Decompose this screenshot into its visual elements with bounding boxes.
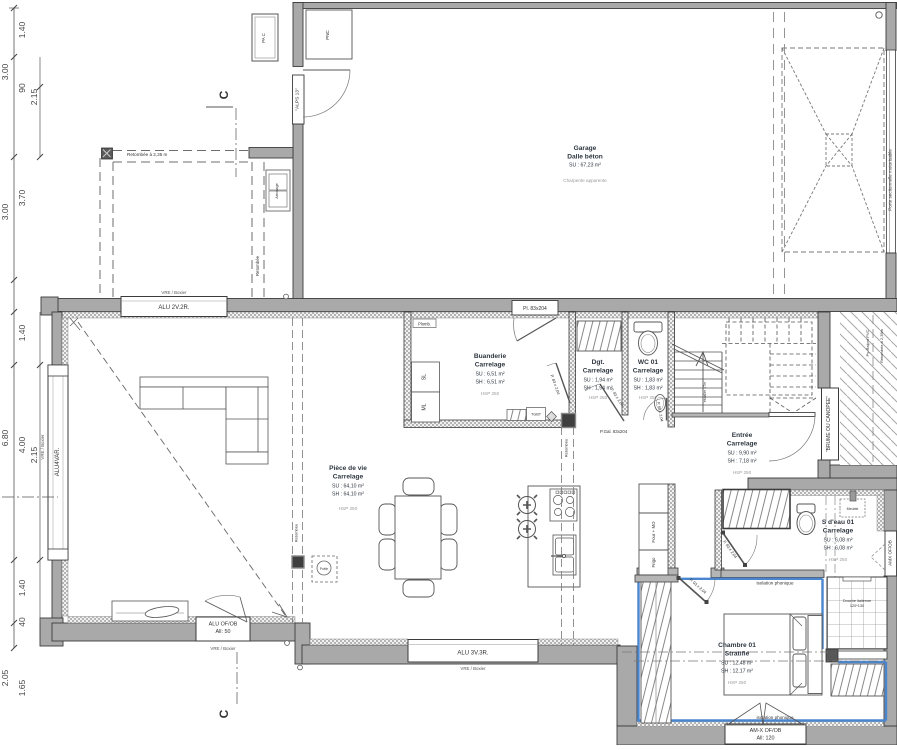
svg-text:escalier 17m: escalier 17m — [703, 382, 707, 402]
svg-text:3.00: 3.00 — [0, 63, 10, 80]
svg-text:Dgt.: Dgt. — [592, 359, 605, 366]
svg-text:Retombée à 2,35 m: Retombée à 2,35 m — [127, 152, 168, 157]
svg-text:SU : 67,23 m²: SU : 67,23 m² — [569, 163, 601, 169]
svg-text:Py-Ralpof PVC: Py-Ralpof PVC — [865, 329, 870, 356]
svg-text:ALU 3V.3R.: ALU 3V.3R. — [457, 651, 488, 657]
svg-text:PA C: PA C — [261, 33, 266, 43]
svg-text:Retombée à 2,35m: Retombée à 2,35m — [879, 328, 884, 363]
svg-text:VRE / Boxier: VRE / Boxier — [161, 290, 187, 295]
svg-text:HSP 250: HSP 250 — [728, 680, 747, 685]
svg-text:Carrelage: Carrelage — [333, 474, 364, 481]
svg-text:ML: ML — [422, 403, 428, 410]
svg-text:WC 01: WC 01 — [638, 359, 658, 366]
svg-text:Poêle: Poêle — [320, 567, 328, 571]
svg-text:SH : 7,18 m²: SH : 7,18 m² — [727, 459, 756, 465]
svg-text:Meuble: Meuble — [847, 507, 859, 511]
svg-text:Frigo: Frigo — [651, 557, 656, 568]
svg-text:90: 90 — [17, 83, 27, 93]
svg-text:Arrosage: Arrosage — [275, 183, 279, 198]
svg-text:isolation phonique: isolation phonique — [756, 581, 793, 586]
svg-text:C: C — [217, 709, 231, 718]
svg-text:VRE / Boxier: VRE / Boxier — [460, 666, 486, 671]
svg-text:SU : 1,94 m²: SU : 1,94 m² — [583, 378, 612, 384]
svg-text:SH : 6,51 m²: SH : 6,51 m² — [475, 380, 504, 386]
svg-text:Retombée: Retombée — [564, 438, 569, 457]
svg-text:HSP 250: HSP 250 — [589, 395, 608, 400]
svg-text:HSP 250: HSP 250 — [339, 506, 358, 511]
svg-text:ALU 2V.2R.: ALU 2V.2R. — [158, 305, 189, 311]
svg-text:ALU OF/OB: ALU OF/OB — [209, 622, 238, 628]
svg-text:Retombée: Retombée — [294, 523, 299, 542]
svg-text:HSP 250: HSP 250 — [481, 391, 500, 396]
svg-text:Carrelage: Carrelage — [633, 368, 664, 375]
svg-text:AMX OF/OB: AMX OF/OB — [888, 540, 893, 566]
svg-text:Garage: Garage — [574, 145, 597, 152]
svg-text:SH : 6,08 m²: SH : 6,08 m² — [823, 546, 852, 552]
svg-text:VRE / Boxier: VRE / Boxier — [210, 646, 236, 651]
svg-text:VRE / Boxier: VRE / Boxier — [40, 434, 45, 460]
svg-text:Carrelage: Carrelage — [475, 362, 506, 369]
svg-text:2.15: 2.15 — [29, 88, 39, 105]
svg-text:All: 120: All: 120 — [757, 736, 775, 742]
svg-text:Chambre 01: Chambre 01 — [718, 642, 756, 649]
svg-text:SL: SL — [422, 374, 428, 380]
svg-text:SH : 12,17 m²: SH : 12,17 m² — [721, 669, 753, 675]
svg-text:Pl. 83x204: Pl. 83x204 — [523, 306, 547, 312]
svg-text:Retombée: Retombée — [255, 255, 260, 276]
svg-text:"ALPS 13": "ALPS 13" — [295, 88, 301, 111]
svg-text:1.40: 1.40 — [17, 324, 27, 341]
svg-text:Porte sectionnelle motorisable: Porte sectionnelle motorisable — [888, 149, 893, 211]
svg-text:SH : 1,94 m²: SH : 1,94 m² — [583, 386, 612, 392]
svg-text:1.65: 1.65 — [17, 679, 27, 696]
svg-text:SH : 1,83 m²: SH : 1,83 m² — [633, 386, 662, 392]
svg-text:HSP 250: HSP 250 — [829, 557, 848, 562]
svg-text:TGBT: TGBT — [531, 413, 542, 417]
svg-text:SU : 12,48 m²: SU : 12,48 m² — [721, 661, 753, 667]
svg-text:SU : 64,10 m²: SU : 64,10 m² — [332, 484, 364, 490]
svg-text:Buanderie: Buanderie — [474, 353, 507, 360]
svg-text:Plomb.: Plomb. — [418, 322, 431, 327]
svg-text:Carrelage: Carrelage — [823, 528, 854, 535]
svg-text:SU : 1,83 m²: SU : 1,83 m² — [633, 378, 662, 384]
svg-text:6.80: 6.80 — [0, 429, 10, 446]
svg-text:Pièce de vie: Pièce de vie — [329, 465, 367, 472]
svg-text:C: C — [217, 90, 231, 99]
svg-text:"BRUME OU CANOPEE": "BRUME OU CANOPEE" — [826, 396, 832, 453]
svg-text:Carrelage: Carrelage — [583, 368, 614, 375]
svg-text:S d'eau 01: S d'eau 01 — [822, 519, 855, 526]
svg-text:1.40: 1.40 — [17, 21, 27, 38]
svg-text:Four + MO: Four + MO — [651, 521, 656, 543]
svg-text:3.70: 3.70 — [17, 189, 27, 206]
svg-text:All: 50: All: 50 — [216, 629, 231, 635]
svg-text:2.05: 2.05 — [0, 669, 10, 686]
svg-text:SU : 6,08 m²: SU : 6,08 m² — [823, 538, 852, 544]
svg-text:Douche italienne: Douche italienne — [843, 599, 871, 603]
svg-text:PNC: PNC — [325, 29, 330, 39]
svg-text:1.40: 1.40 — [17, 579, 27, 596]
svg-text:40: 40 — [17, 617, 27, 627]
svg-text:Carrelage: Carrelage — [727, 441, 758, 448]
svg-text:AM-X OF/OB: AM-X OF/OB — [750, 728, 782, 734]
svg-text:Entrée: Entrée — [732, 432, 753, 439]
svg-text:120*130: 120*130 — [850, 604, 864, 608]
svg-text:SH : 64,10 m²: SH : 64,10 m² — [332, 492, 364, 498]
svg-text:P.Gal. 83x204: P.Gal. 83x204 — [600, 429, 628, 434]
svg-text:Dalle béton: Dalle béton — [567, 154, 603, 161]
svg-text:Charpente apparente: Charpente apparente — [563, 178, 607, 183]
svg-text:ALU4VAR.: ALU4VAR. — [55, 447, 61, 476]
svg-text:4.00: 4.00 — [17, 436, 27, 453]
svg-text:SU : 6,51 m²: SU : 6,51 m² — [475, 372, 504, 378]
svg-text:HSP 250: HSP 250 — [733, 470, 752, 475]
svg-text:SU : 9,90 m²: SU : 9,90 m² — [727, 451, 756, 457]
svg-text:3.00: 3.00 — [0, 203, 10, 220]
svg-text:Stratifié: Stratifié — [725, 651, 750, 658]
svg-text:2.15: 2.15 — [29, 446, 39, 463]
